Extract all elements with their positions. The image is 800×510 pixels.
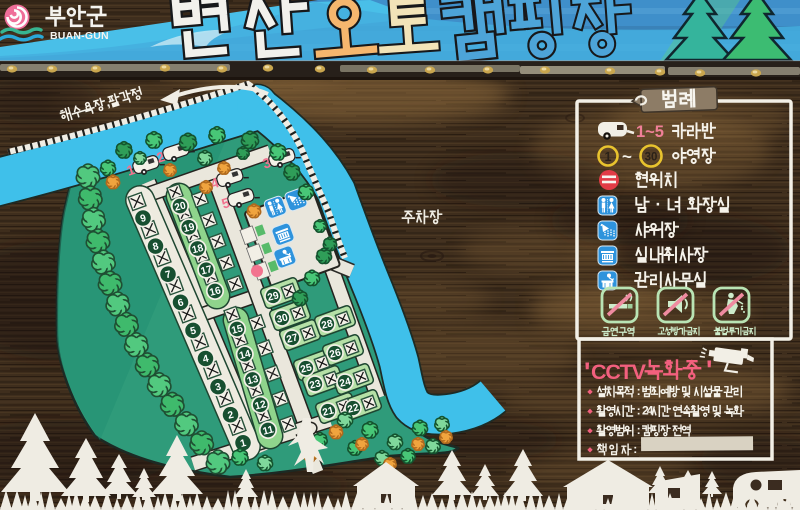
svg-text::: : <box>637 404 641 418</box>
svg-text:CCTV: CCTV <box>591 360 647 384</box>
svg-text:4: 4 <box>647 404 654 418</box>
svg-text::: : <box>637 423 641 437</box>
svg-text:1~5: 1~5 <box>636 123 664 141</box>
svg-text:BUAN-GUN: BUAN-GUN <box>50 30 109 42</box>
svg-text:1: 1 <box>605 150 612 164</box>
svg-text:30: 30 <box>645 152 658 164</box>
svg-text::: : <box>637 384 641 398</box>
svg-text:': ' <box>706 355 712 385</box>
svg-text:': ' <box>584 357 590 387</box>
svg-text:·: · <box>656 195 662 214</box>
svg-text:~: ~ <box>622 147 632 166</box>
svg-text::: : <box>633 442 637 456</box>
